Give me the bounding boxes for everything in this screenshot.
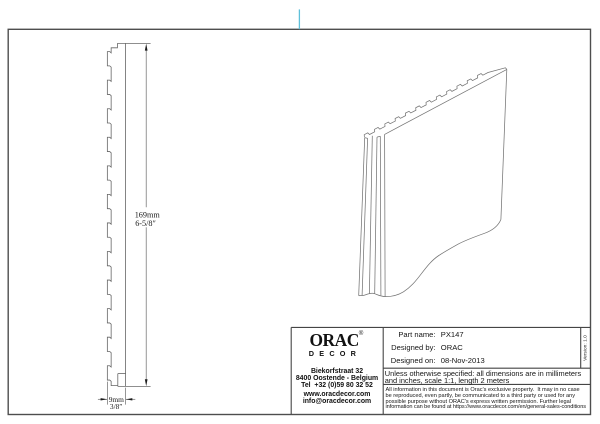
svg-text:3/8″: 3/8″ bbox=[110, 402, 123, 411]
svg-text:6-5/8″: 6-5/8″ bbox=[135, 219, 156, 228]
